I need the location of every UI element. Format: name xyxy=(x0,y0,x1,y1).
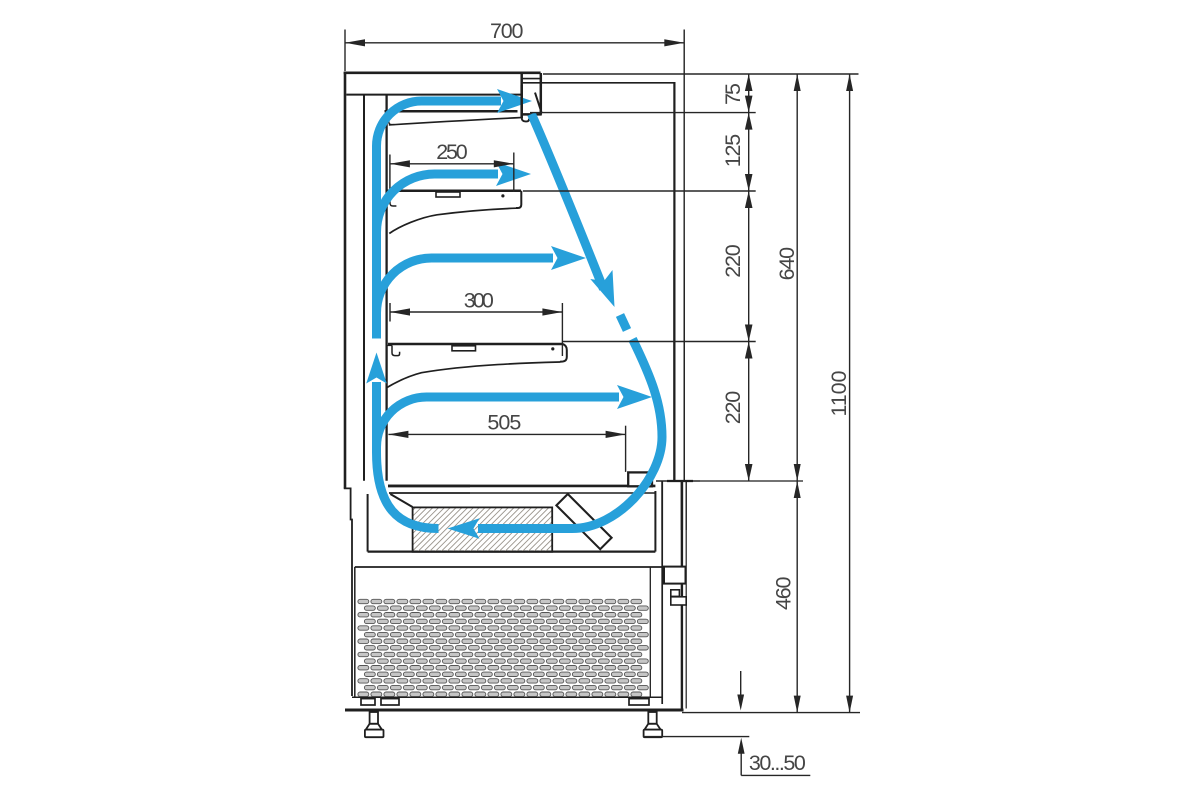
svg-text:300: 300 xyxy=(464,288,494,312)
svg-text:250: 250 xyxy=(436,140,468,164)
svg-text:460: 460 xyxy=(771,577,795,611)
svg-text:220: 220 xyxy=(721,244,745,278)
svg-text:75: 75 xyxy=(721,83,745,105)
svg-text:505: 505 xyxy=(487,411,521,435)
svg-text:30...50: 30...50 xyxy=(749,751,806,775)
svg-text:125: 125 xyxy=(721,134,745,168)
svg-text:700: 700 xyxy=(490,19,524,43)
svg-text:1100: 1100 xyxy=(827,370,851,416)
svg-text:220: 220 xyxy=(721,391,745,425)
svg-text:640: 640 xyxy=(775,247,799,281)
